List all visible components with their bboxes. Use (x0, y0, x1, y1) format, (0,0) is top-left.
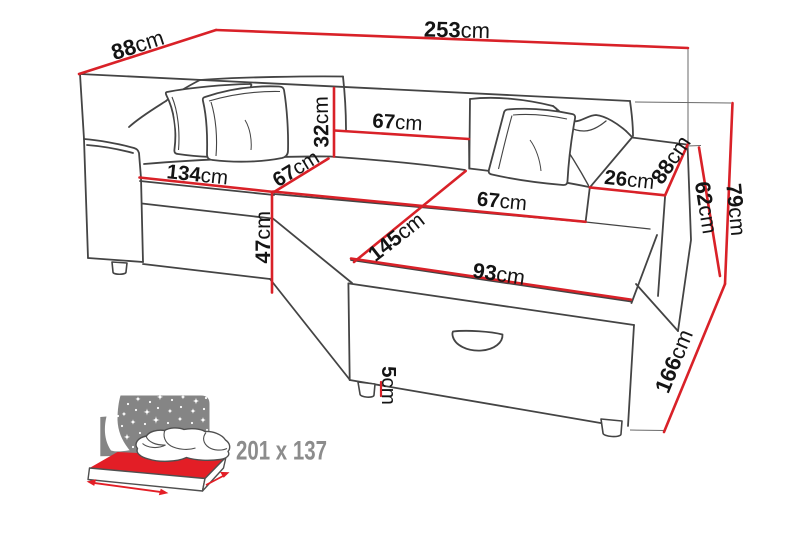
svg-text:5cm: 5cm (377, 366, 400, 405)
svg-text:67cm: 67cm (372, 109, 423, 135)
svg-text:201 x 137: 201 x 137 (236, 436, 327, 466)
svg-text:79cm: 79cm (721, 182, 750, 237)
svg-text:67cm: 67cm (476, 188, 528, 216)
svg-text:253cm: 253cm (424, 17, 491, 44)
svg-text:32cm: 32cm (310, 96, 334, 148)
svg-text:47cm: 47cm (251, 211, 275, 264)
